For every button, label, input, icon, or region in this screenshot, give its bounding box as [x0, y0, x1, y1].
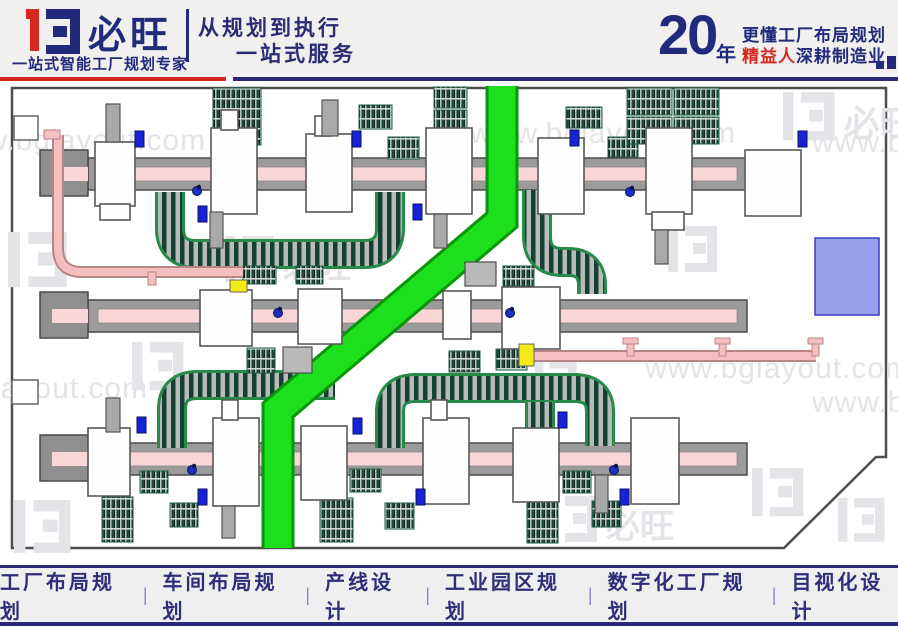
machine — [426, 128, 472, 214]
machine — [213, 418, 259, 506]
storage-rack — [503, 266, 534, 286]
machine-chimney — [106, 104, 120, 142]
door-marker — [135, 131, 144, 147]
pipe-cap — [715, 338, 730, 344]
storage-rack — [243, 266, 276, 284]
pixel-decoration — [876, 61, 884, 69]
storage-rack — [566, 107, 602, 128]
years-unit: 年 — [716, 38, 736, 67]
footer-nav-item[interactable]: 数字化工厂规划 — [608, 566, 757, 624]
machine — [502, 287, 560, 349]
machine — [221, 110, 238, 130]
pipe-cap — [623, 338, 638, 344]
machine — [745, 150, 801, 216]
machine-chimney — [222, 506, 235, 538]
storage-rack — [627, 88, 672, 115]
header-rule-navy — [233, 77, 898, 81]
footer-separator: | — [305, 585, 310, 606]
storage-rack — [140, 471, 168, 493]
wall-box — [14, 116, 38, 140]
wall-box — [12, 380, 38, 404]
machine — [88, 428, 130, 496]
brand-logo-icon — [26, 7, 82, 57]
door-marker — [137, 417, 146, 433]
footer-nav-item[interactable]: 工业园区规划 — [445, 566, 573, 624]
door-marker — [558, 412, 567, 428]
storage-rack — [247, 348, 275, 373]
footer-separator: | — [588, 585, 593, 606]
door-marker — [198, 489, 207, 505]
storage-rack — [359, 105, 392, 129]
door-marker — [798, 131, 807, 147]
machine — [513, 428, 559, 502]
door-marker — [413, 204, 422, 220]
machine-chimney — [210, 212, 223, 248]
pixel-decoration — [887, 56, 896, 69]
years-number: 20 — [658, 2, 716, 67]
machine — [211, 128, 257, 214]
pipe-cap — [808, 338, 823, 344]
door-marker — [570, 130, 579, 146]
watermark-logo — [838, 498, 885, 542]
machine — [200, 290, 252, 346]
machine — [652, 212, 684, 230]
machine — [443, 291, 471, 339]
machine — [298, 289, 342, 344]
machine — [100, 204, 130, 220]
header: 必旺 一站式智能工厂规划专家 从规划到执行 一站式服务 20 年 更懂工厂布局规… — [0, 0, 898, 77]
header-right-line2: 精益人深耕制造业 — [742, 42, 886, 67]
header-rule-red — [0, 77, 226, 81]
door-marker — [416, 489, 425, 505]
footer-nav-item[interactable]: 产线设计 — [325, 566, 410, 624]
storage-rack — [388, 137, 419, 159]
pipe-cap — [44, 130, 60, 139]
equipment-pad — [283, 347, 312, 373]
brand-tagline: 一站式智能工厂规划专家 — [12, 53, 188, 74]
machine-chimney — [106, 398, 120, 432]
machine — [306, 134, 352, 212]
equipment-pad — [465, 262, 496, 286]
storage-rack — [563, 471, 591, 493]
storage-rack — [350, 469, 381, 492]
storage-zone — [815, 238, 879, 315]
header-divider — [186, 9, 189, 62]
storage-rack — [296, 266, 323, 284]
storage-rack — [449, 351, 480, 372]
machine-chimney — [434, 214, 447, 248]
footer-nav: 工厂布局规划|车间布局规划|产线设计|工业园区规划|数字化工厂规划|目视化设计 — [0, 568, 898, 622]
machine — [538, 138, 584, 214]
door-marker — [198, 206, 207, 222]
storage-rack — [674, 88, 719, 115]
header-right-red: 精益人 — [742, 47, 796, 66]
machine — [646, 128, 692, 214]
footer-rule-bottom — [0, 622, 898, 626]
machine — [423, 418, 469, 504]
yellow-station-marker — [519, 344, 534, 366]
storage-rack — [434, 87, 467, 108]
door-marker — [353, 418, 362, 434]
machine — [631, 418, 679, 504]
line-head-notch — [52, 452, 88, 466]
machine-chimney — [595, 475, 608, 513]
footer-nav-item[interactable]: 车间布局规划 — [163, 566, 291, 624]
yellow-station-marker — [230, 280, 247, 292]
machine-chimney — [322, 100, 338, 136]
footer-nav-item[interactable]: 工厂布局规划 — [0, 566, 128, 624]
footer-nav-item[interactable]: 目视化设计 — [791, 566, 898, 624]
banner-page: 必旺 一站式智能工厂规划专家 从规划到执行 一站式服务 20 年 更懂工厂布局规… — [0, 0, 898, 634]
brand-name: 必旺 — [88, 4, 172, 59]
machine-chimney — [655, 230, 668, 264]
door-marker — [352, 131, 361, 147]
storage-rack — [320, 498, 353, 542]
watermark-url-text: www.bglayout.com — [811, 126, 898, 159]
pipe-support — [148, 272, 156, 285]
machine — [301, 426, 347, 500]
factory-layout-diagram: 必旺必旺必旺www.bglayout.comwww.bglayout.comww… — [0, 84, 898, 570]
door-marker — [620, 489, 629, 505]
machine — [431, 400, 447, 420]
footer-separator: | — [425, 585, 430, 606]
machine — [222, 400, 238, 420]
storage-rack — [102, 497, 133, 542]
footer-separator: | — [772, 585, 777, 606]
conveyor-belt-center — [98, 167, 737, 181]
slogan-line2: 一站式服务 — [236, 38, 356, 68]
watermark-url-text: www.bglayout.com — [811, 386, 898, 419]
storage-rack — [170, 503, 198, 527]
machine — [95, 142, 135, 206]
footer-separator: | — [143, 585, 148, 606]
line-head-notch — [52, 309, 88, 323]
storage-rack — [385, 503, 414, 529]
header-right-rest: 深耕制造业 — [796, 47, 886, 66]
